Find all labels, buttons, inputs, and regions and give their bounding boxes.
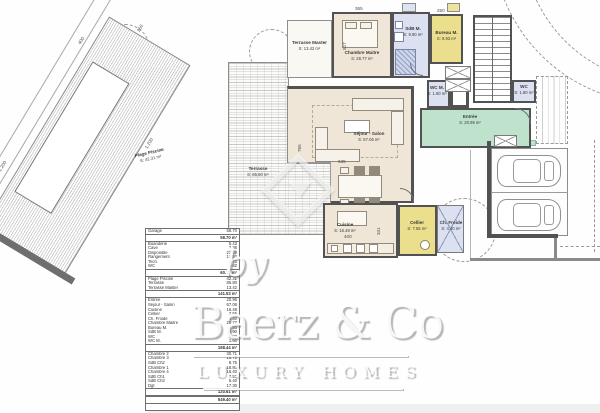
skylight	[402, 3, 416, 12]
room-label-cellier: Cellier S: 7.55 m²	[402, 220, 432, 231]
site-line	[554, 238, 557, 260]
glass-wall	[330, 163, 331, 203]
garage-wall	[487, 141, 491, 238]
table-total-row: 58.70 m²	[146, 234, 239, 242]
dim-cuisine-width: 400	[344, 234, 352, 239]
stall-divider	[491, 192, 568, 193]
site-dashed-line	[594, 140, 595, 252]
dim-bureau-width: 250	[437, 8, 445, 13]
room-label-cuisine: Cuisine S: 16.48 m²	[328, 222, 362, 233]
dim-sejour-width: 635	[338, 159, 346, 164]
trellis	[536, 76, 568, 144]
closet-icon	[445, 66, 471, 79]
terrace-area	[228, 62, 289, 235]
surface-table: Garage58.7058.70 m²Buanderie5.43Cave7.36…	[145, 228, 240, 411]
sofa	[352, 98, 404, 111]
room-label-entree: Entrée S: 20.95 m²	[450, 114, 490, 125]
table-total-row: 168.44 m²	[146, 344, 239, 352]
room-label-sejour: Séjour - Salon S: 67.06 m²	[340, 131, 398, 142]
car-icon	[497, 199, 561, 231]
table-total-row: 549.40 m²	[146, 396, 239, 404]
car-icon	[497, 155, 561, 187]
skylight	[447, 3, 460, 12]
room-label-terrasse-master: Terrasse Master S: 13.42 m²	[286, 40, 333, 51]
glass-wall	[288, 162, 331, 163]
washer-icon	[420, 240, 430, 250]
appliance	[331, 245, 338, 252]
room-label-chambre-maitre: Chambre Maitre S: 28.77 m²	[334, 50, 390, 61]
floor-plan-canvas: 1.200 1.200 400 260 Plage Piscine S: 42.…	[0, 0, 600, 413]
room-label-bureau-m: Bureau M. S: 9.93 m²	[431, 30, 462, 41]
pillow	[360, 22, 372, 29]
dim-sejour-height: 765	[297, 144, 302, 152]
dim-top-width: 365	[355, 6, 363, 11]
table-total-row: 60.12 m²	[146, 269, 239, 277]
dining-table	[338, 175, 382, 198]
table-total-row: 120.61 m²	[146, 388, 239, 396]
room-label-ch-froide: Ch. Froide S: 4.40 m²	[436, 220, 466, 231]
room-label-wc-m: WC M. S: 1.60 m²	[425, 85, 449, 96]
pillow	[345, 22, 357, 29]
dining-chairs-row	[340, 167, 349, 174]
garage-wall	[487, 234, 558, 238]
table-total-row: 141.53 m²	[146, 290, 239, 298]
room-label-terrasse: Terrasse S: 85.80 m²	[232, 166, 284, 177]
path-line	[470, 150, 471, 258]
stair-rail	[492, 17, 493, 101]
closet-icon	[494, 135, 517, 147]
site-line	[470, 258, 600, 261]
room-label-wc: WC S: 1.80 m²	[512, 84, 536, 95]
dim-cuisine-height: 341	[376, 227, 381, 235]
dim-chambre-height: 527	[342, 42, 347, 50]
room-label-sdb-m: SdB M. S: 9.90 m²	[398, 26, 428, 37]
